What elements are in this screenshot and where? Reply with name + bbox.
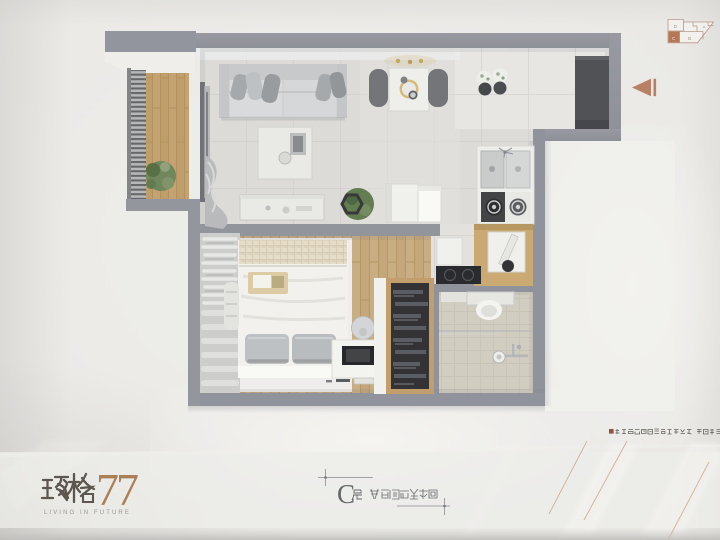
svg-text:B: B (688, 36, 691, 41)
svg-text:C: C (337, 479, 355, 509)
svg-text:77: 77 (96, 464, 138, 515)
svg-text:LIVING IN FUTURE: LIVING IN FUTURE (44, 510, 131, 516)
